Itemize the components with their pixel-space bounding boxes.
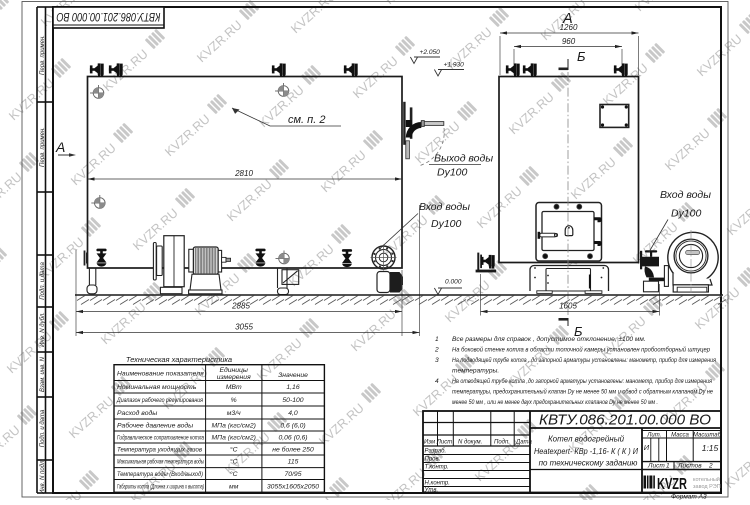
svg-text:А: А [562, 11, 573, 27]
svg-text:%: % [231, 397, 237, 404]
svg-text:50-100: 50-100 [282, 397, 303, 404]
svg-text:N докум.: N докум. [458, 440, 482, 446]
svg-text:0,6 (6,0): 0,6 (6,0) [280, 422, 305, 429]
svg-text:4,0: 4,0 [288, 410, 298, 417]
svg-text:МПа (кгс/см2): МПа (кгс/см2) [211, 434, 255, 441]
svg-text:3: 3 [435, 357, 439, 364]
svg-text:Т.контр.: Т.контр. [425, 465, 449, 471]
svg-text:1: 1 [435, 336, 439, 343]
svg-text:1605: 1605 [559, 302, 577, 311]
svg-text:На подводящей трубе котла , д: На подводящей трубе котла , до запорной … [452, 356, 716, 364]
svg-text:+1.930: +1.930 [444, 62, 465, 69]
svg-text:2885: 2885 [231, 302, 250, 311]
svg-text:Лит.: Лит. [646, 433, 661, 439]
svg-text:менее 50 мм , или не менее дву: менее 50 мм , или не менее двух предохра… [452, 398, 658, 406]
svg-text:На отводящей трубе котла ,до з: На отводящей трубе котла ,до запорной ар… [452, 377, 712, 385]
svg-text:КВТУ.086.201.00.000 ВО: КВТУ.086.201.00.000 ВО [57, 10, 161, 24]
svg-text:по техническому заданию: по техническому заданию [539, 459, 638, 468]
svg-text:м3/ч: м3/ч [227, 410, 241, 417]
svg-text:Значение: Значение [278, 372, 308, 379]
svg-text:2: 2 [708, 463, 713, 470]
svg-text:И: И [644, 443, 650, 452]
svg-text:Наименование показателя: Наименование показателя [117, 371, 204, 378]
svg-text:Инв. N подл.: Инв. N подл. [40, 459, 46, 494]
svg-text:Единицы: Единицы [219, 366, 247, 374]
svg-text:Лист: Лист [647, 463, 665, 470]
svg-text:Температура уходящих газов: Температура уходящих газов [117, 445, 202, 453]
svg-text:температуры.: температуры. [452, 367, 499, 374]
svg-text:Температура воды (Вход/выход): Температура воды (Вход/выход) [117, 470, 203, 478]
svg-text:котельный: котельный [693, 476, 720, 483]
svg-text:Расход воды: Расход воды [117, 409, 157, 417]
svg-text:Н.контр.: Н.контр. [425, 481, 450, 487]
svg-text:1: 1 [666, 463, 670, 470]
svg-text:Взам. инв. N: Взам. инв. N [40, 356, 46, 392]
svg-text:Изм Лист: Изм Лист [424, 440, 452, 446]
svg-text:+2.050: +2.050 [420, 49, 441, 56]
svg-text:Все размеры для справок , допу: Все размеры для справок , допустимое отк… [452, 335, 646, 343]
svg-text:Формат А3: Формат А3 [671, 494, 707, 501]
svg-text:1:15: 1:15 [702, 443, 719, 453]
svg-text:Dy100: Dy100 [431, 218, 462, 230]
svg-text:завод РЭП: завод РЭП [693, 484, 721, 490]
svg-text:температуры, предохранительный: температуры, предохранительный клапан Dу… [452, 387, 713, 395]
svg-text:Б: Б [577, 49, 586, 64]
svg-text:Номинальная мощность: Номинальная мощность [117, 384, 197, 391]
svg-text:Выход воды: Выход воды [434, 153, 493, 165]
svg-text:Подп.: Подп. [494, 440, 510, 446]
svg-text:1,16: 1,16 [286, 384, 299, 391]
svg-text:измерения: измерения [217, 374, 251, 381]
svg-text:Гидравлическое сопративление к: Гидравлическое сопративление котла [117, 433, 204, 441]
svg-text:Перв. примен.: Перв. примен. [40, 127, 46, 167]
svg-text:Dy100: Dy100 [437, 167, 468, 179]
svg-text:0.000: 0.000 [445, 279, 462, 286]
svg-text:Дата: Дата [515, 440, 532, 446]
svg-text:Масштаб: Масштаб [693, 433, 722, 439]
svg-text:На боковой стенке котла в обла: На боковой стенке котла в области топочн… [452, 346, 710, 354]
svg-text:мм: мм [229, 483, 239, 490]
svg-text:°С: °С [230, 445, 238, 453]
svg-text:°С: °С [230, 470, 238, 478]
svg-text:Диапазон рабочего регулировани: Диапазон рабочего регулирования [116, 396, 203, 404]
svg-text:Габариты котла (Длинна х ширин: Габариты котла (Длинна х ширина х высота… [117, 482, 204, 490]
svg-text:Heatexpert- КВр -1,16- К ( К ): Heatexpert- КВр -1,16- К ( К ) И [534, 447, 638, 456]
svg-text:Вход воды: Вход воды [660, 189, 711, 201]
svg-text:Пров.: Пров. [425, 457, 441, 463]
svg-text:2: 2 [434, 347, 439, 354]
svg-text:0,06 (0,6): 0,06 (0,6) [278, 434, 307, 441]
svg-text:Техническая характеристика: Техническая характеристика [126, 355, 232, 364]
svg-text:115: 115 [288, 459, 299, 466]
svg-text:Утв.: Утв. [424, 488, 439, 494]
svg-text:Подп. и дата: Подп. и дата [40, 262, 46, 300]
svg-text:Dy100: Dy100 [671, 208, 702, 220]
svg-text:Котел водогрейный: Котел водогрейный [548, 435, 625, 444]
svg-text:Перв. примен.: Перв. примен. [40, 35, 46, 75]
svg-text:см. п. 2: см. п. 2 [288, 114, 325, 126]
svg-text:2810: 2810 [234, 169, 253, 178]
svg-text:Масса: Масса [671, 433, 689, 439]
svg-text:МПа (кгс/см2): МПа (кгс/см2) [211, 422, 255, 429]
svg-text:KVZR: KVZR [657, 476, 687, 493]
svg-text:3055х1605х2050: 3055х1605х2050 [267, 483, 319, 490]
svg-text:3055: 3055 [235, 323, 253, 332]
svg-text:не более 250: не более 250 [272, 445, 314, 453]
svg-text:960: 960 [562, 37, 576, 46]
svg-text:Подп. и дата: Подп. и дата [40, 409, 46, 447]
svg-text:КВТУ.086.201.00.000 ВО: КВТУ.086.201.00.000 ВО [539, 413, 711, 429]
svg-text:Вход воды: Вход воды [419, 201, 470, 213]
svg-text:Листов: Листов [677, 463, 702, 470]
svg-text:Разраб.: Разраб. [425, 449, 447, 455]
svg-text:Инв. N дубл.: Инв. N дубл. [40, 312, 46, 347]
svg-text:А: А [55, 139, 65, 155]
svg-text:70/95: 70/95 [284, 471, 301, 478]
svg-text:Рабочее давление воды: Рабочее давление воды [117, 421, 193, 429]
svg-text:Максимальная рабочая температу: Максимальная рабочая температура воды [117, 458, 204, 466]
svg-text:4: 4 [435, 378, 439, 385]
svg-text:МВт: МВт [226, 384, 242, 391]
svg-text:°С: °С [230, 458, 238, 466]
